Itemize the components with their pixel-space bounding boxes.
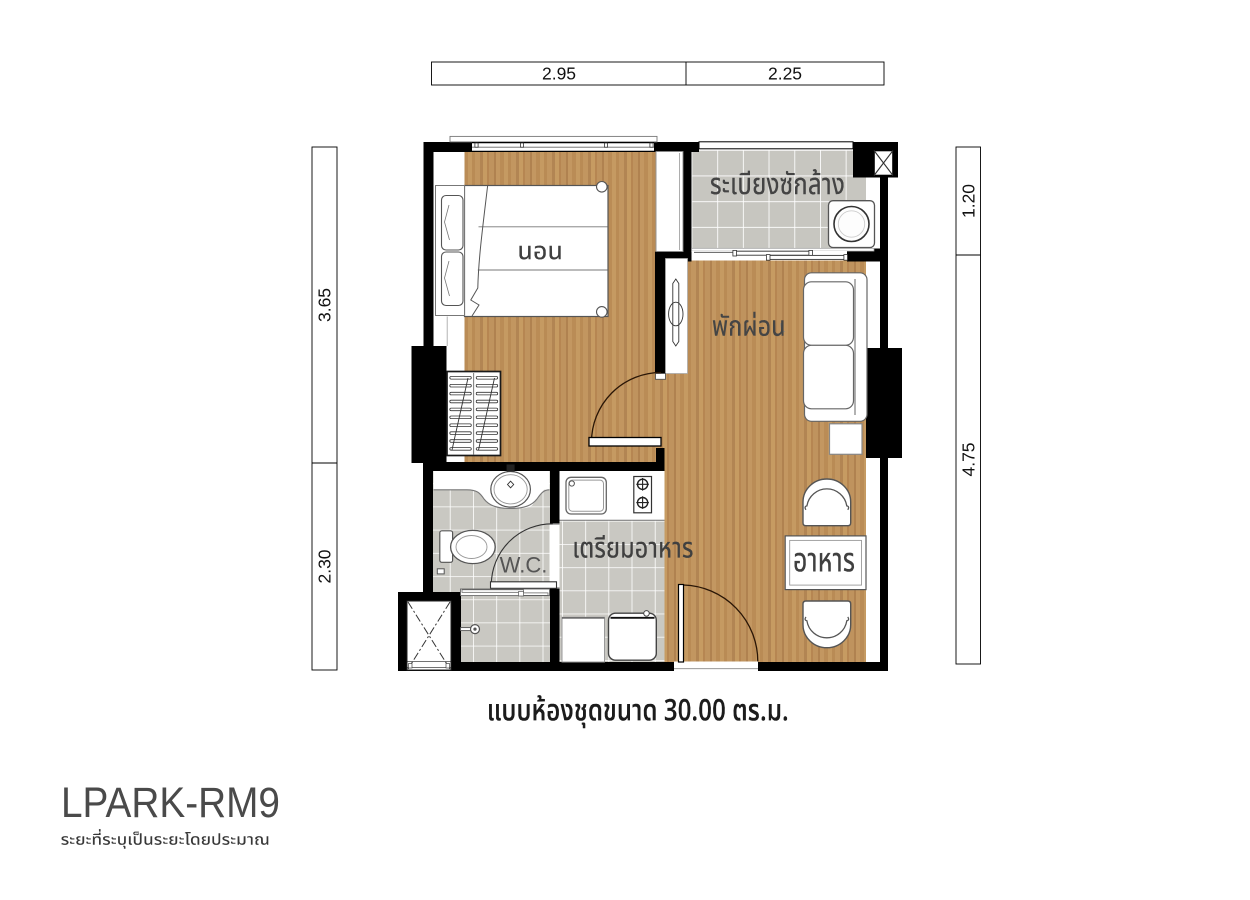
svg-text:1.20: 1.20 [959,184,979,218]
svg-text:2.25: 2.25 [768,64,802,84]
svg-text:2.95: 2.95 [542,64,576,84]
svg-text:2.30: 2.30 [315,549,335,583]
svg-text:W.C.: W.C. [500,553,548,578]
svg-text:LPARK-RM9: LPARK-RM9 [61,780,280,827]
svg-text:4.75: 4.75 [959,442,979,476]
svg-text:3.65: 3.65 [315,288,335,322]
